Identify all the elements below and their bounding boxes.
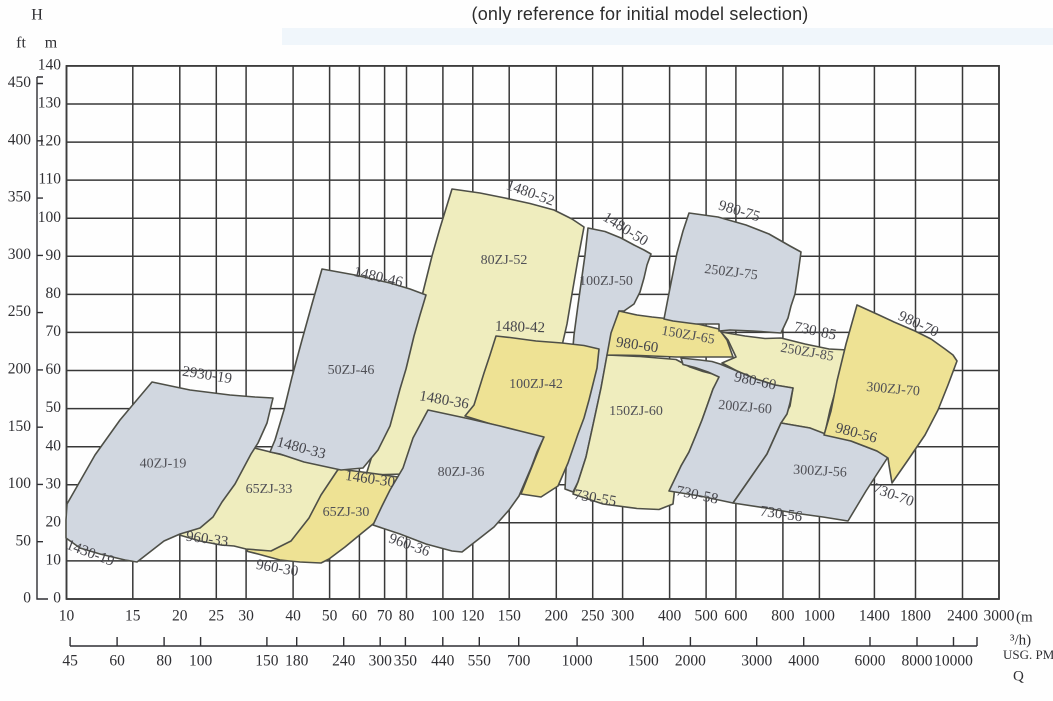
svg-text:10: 10 [59,608,75,625]
svg-text:10: 10 [46,551,62,568]
svg-text:700: 700 [507,653,531,670]
svg-text:100: 100 [189,653,213,670]
svg-text:440: 440 [431,653,455,670]
svg-text:550: 550 [468,653,492,670]
svg-text:450: 450 [8,74,32,91]
svg-text:40: 40 [46,437,62,454]
svg-text:100: 100 [8,475,32,492]
svg-text:50ZJ-46: 50ZJ-46 [328,363,375,378]
svg-text:40ZJ-19: 40ZJ-19 [140,457,187,472]
svg-text:150: 150 [8,418,32,435]
svg-text:50: 50 [16,532,32,549]
svg-text:110: 110 [38,171,61,188]
svg-text:10000: 10000 [934,653,973,670]
svg-text:200: 200 [8,360,32,377]
svg-text:80: 80 [399,608,415,625]
svg-text:(m: (m [1016,609,1033,625]
svg-text:150: 150 [498,608,522,625]
svg-text:6000: 6000 [855,653,886,670]
svg-text:600: 600 [724,608,748,625]
svg-text:1800: 1800 [900,608,931,625]
svg-text:150: 150 [255,653,279,670]
svg-text:80: 80 [156,653,172,670]
svg-text:250: 250 [8,303,32,320]
svg-text:4000: 4000 [788,653,819,670]
svg-text:1500: 1500 [628,653,659,670]
svg-text:300ZJ-56: 300ZJ-56 [793,463,847,481]
svg-text:60: 60 [109,653,125,670]
svg-text:0: 0 [53,590,61,607]
svg-text:1000: 1000 [562,653,593,670]
svg-text:20: 20 [172,608,188,625]
svg-text:30: 30 [238,608,254,625]
svg-text:100ZJ-42: 100ZJ-42 [509,377,563,392]
svg-text:90: 90 [46,247,62,264]
svg-text:70: 70 [377,608,393,625]
svg-text:50: 50 [46,399,62,416]
svg-text:250: 250 [581,608,605,625]
svg-text:ft: ft [16,35,26,52]
svg-text:1400: 1400 [859,608,890,625]
svg-text:45: 45 [62,653,78,670]
svg-text:USG. PM: USG. PM [1003,647,1053,662]
svg-text:120: 120 [461,608,485,625]
svg-text:350: 350 [8,189,32,206]
svg-text:350: 350 [394,653,418,670]
svg-text:130: 130 [38,95,62,112]
svg-text:H: H [31,7,43,24]
svg-text:20: 20 [46,513,62,530]
svg-text:70: 70 [46,323,62,340]
svg-text:800: 800 [771,608,795,625]
svg-text:3000: 3000 [741,653,772,670]
svg-text:8000: 8000 [902,653,933,670]
svg-text:100ZJ-50: 100ZJ-50 [579,274,633,289]
svg-text:100: 100 [431,608,455,625]
svg-text:50: 50 [322,608,338,625]
svg-text:140: 140 [38,56,62,73]
svg-text:500: 500 [694,608,718,625]
svg-text:15: 15 [125,608,141,625]
svg-text:60: 60 [352,608,368,625]
svg-text:400: 400 [658,608,682,625]
svg-text:65ZJ-30: 65ZJ-30 [323,505,370,520]
svg-text:0: 0 [23,590,31,607]
svg-text:3000: 3000 [984,608,1015,625]
svg-text:400: 400 [8,131,32,148]
svg-text:300: 300 [8,246,32,263]
svg-text:300: 300 [369,653,393,670]
svg-text:1000: 1000 [804,608,835,625]
svg-text:65ZJ-33: 65ZJ-33 [246,482,293,497]
svg-text:80: 80 [46,285,62,302]
svg-text:30: 30 [46,475,62,492]
svg-text:80ZJ-36: 80ZJ-36 [438,465,485,480]
svg-text:1480-42: 1480-42 [495,319,546,337]
svg-text:80ZJ-52: 80ZJ-52 [481,253,528,268]
svg-text:40: 40 [285,608,301,625]
svg-text:100: 100 [38,209,62,226]
svg-text:150ZJ-60: 150ZJ-60 [609,404,663,419]
svg-text:Q: Q [1013,668,1024,684]
svg-text:2000: 2000 [675,653,706,670]
svg-text:240: 240 [332,653,356,670]
svg-text:300: 300 [611,608,635,625]
svg-text:60: 60 [46,361,62,378]
svg-text:180: 180 [285,653,309,670]
svg-text:m: m [45,35,58,52]
svg-text:2400: 2400 [947,608,978,625]
svg-text:25: 25 [209,608,225,625]
svg-text:200: 200 [545,608,569,625]
